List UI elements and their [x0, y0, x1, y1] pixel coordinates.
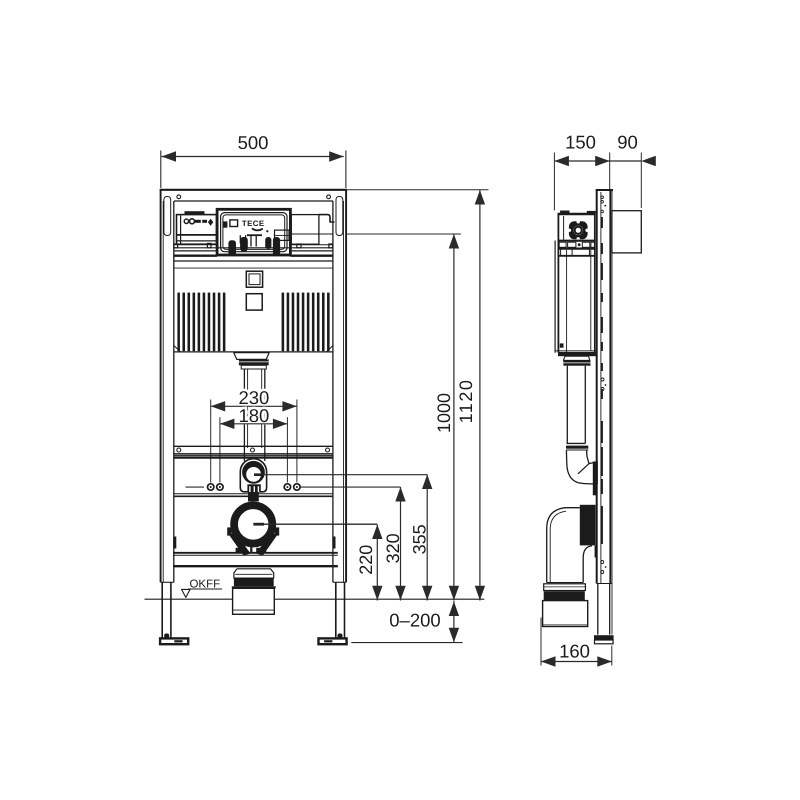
- svg-text:1120: 1120: [456, 379, 476, 424]
- svg-text:1000: 1000: [434, 393, 454, 433]
- svg-text:220: 220: [356, 545, 376, 575]
- svg-text:150: 150: [565, 132, 596, 153]
- svg-text:320: 320: [383, 533, 403, 563]
- svg-text:160: 160: [559, 640, 590, 661]
- svg-text:180: 180: [238, 405, 269, 426]
- svg-text:90: 90: [617, 132, 638, 153]
- svg-text:0–200: 0–200: [389, 609, 440, 630]
- svg-text:TECE: TECE: [242, 219, 265, 228]
- svg-text:355: 355: [410, 524, 430, 554]
- svg-text:500: 500: [238, 132, 269, 153]
